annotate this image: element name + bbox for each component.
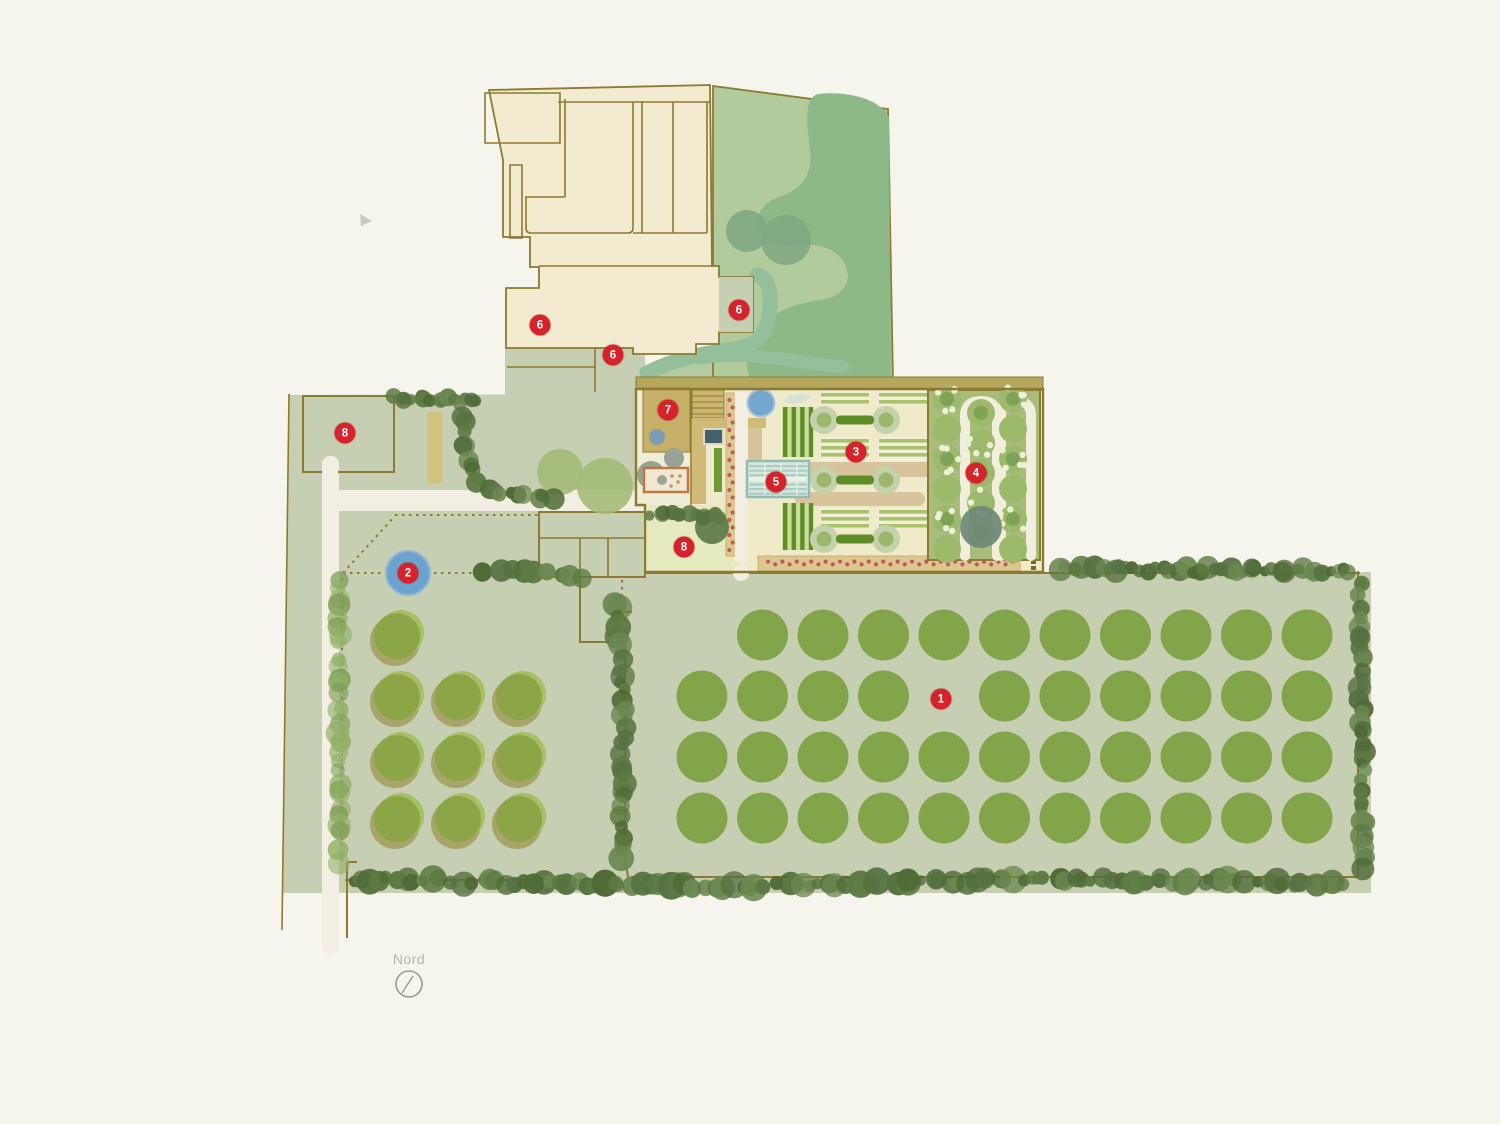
north-label: Nord <box>393 951 425 967</box>
plan-marker-5: 5 <box>766 472 787 493</box>
plan-marker-6: 6 <box>603 345 624 366</box>
outbuilding <box>539 512 645 577</box>
north-compass-icon <box>396 971 422 997</box>
large-tree-icon <box>960 506 1002 548</box>
plan-marker-4: 4 <box>966 463 987 484</box>
plan-marker-2: 2 <box>398 563 419 584</box>
plan-marker-1: 1 <box>931 689 952 710</box>
plan-marker-7: 7 <box>658 400 679 421</box>
plan-marker-3: 3 <box>846 442 867 463</box>
garden-pond-icon <box>748 390 775 417</box>
plan-marker-6: 6 <box>530 315 551 336</box>
small-pond-icon <box>649 429 665 445</box>
site-plan-page: Nord 12345666788 <box>0 0 1500 1124</box>
plan-marker-8: 8 <box>674 537 695 558</box>
stray-arrow-icon <box>360 214 372 226</box>
basin-dark <box>704 429 723 444</box>
plan-marker-8: 8 <box>335 423 356 444</box>
plan-marker-6: 6 <box>729 300 750 321</box>
site-plan-canvas <box>0 0 1500 1124</box>
